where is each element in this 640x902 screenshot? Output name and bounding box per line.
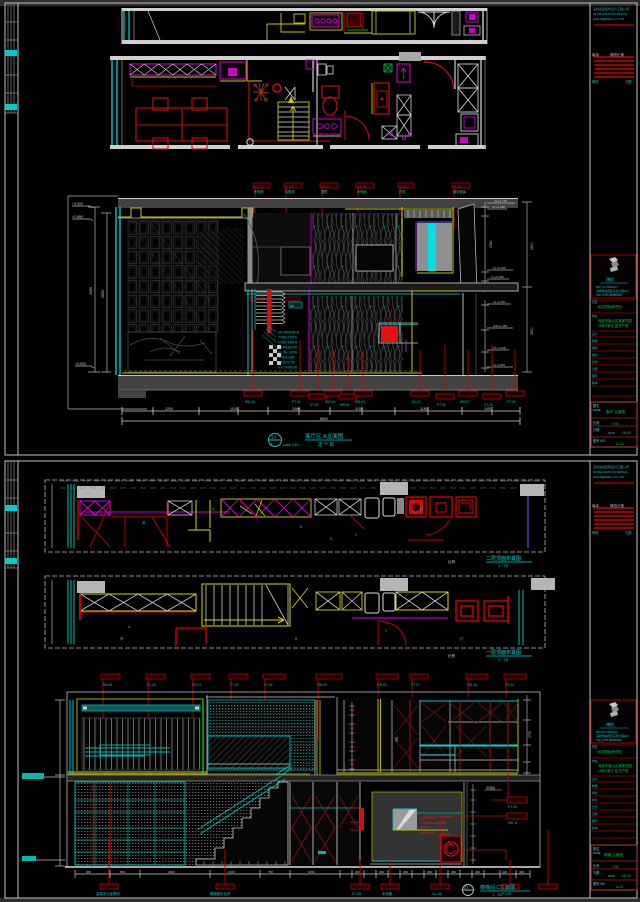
svg-text:修改记录: 修改记录	[610, 503, 624, 508]
svg-text:校对: 校对	[592, 798, 598, 802]
svg-text:12mm钢化玻璃栏板: 12mm钢化玻璃栏板	[278, 330, 300, 334]
svg-text:650: 650	[120, 870, 125, 874]
svg-text:260: 260	[475, 870, 480, 874]
svg-text:PT-02: PT-02	[285, 185, 293, 189]
svg-text:TEL:0755-88888888: TEL:0755-88888888	[596, 738, 622, 742]
svg-text:260: 260	[451, 870, 456, 874]
svg-text:2580: 2580	[489, 240, 493, 248]
svg-text:PT-05: PT-05	[437, 403, 446, 407]
svg-text:2850: 2850	[89, 287, 93, 295]
svg-text:PT-03: PT-03	[292, 400, 301, 404]
svg-text:1 : 75: 1 : 75	[498, 657, 509, 662]
svg-text:A: A	[270, 442, 273, 447]
svg-text:750: 750	[268, 870, 273, 874]
svg-text:6690: 6690	[320, 417, 328, 421]
svg-text:WD-04: WD-04	[325, 400, 335, 404]
svg-text:21: 21	[464, 885, 469, 890]
svg-text:WD-05: WD-05	[357, 185, 367, 189]
svg-text:NAME: NAME	[593, 851, 601, 855]
svg-text:WD-09: WD-09	[317, 683, 327, 687]
svg-text:图号: 图号	[592, 374, 598, 378]
svg-text:900: 900	[86, 870, 91, 874]
svg-text:13: 13	[271, 435, 277, 440]
svg-text:ST-05: ST-05	[352, 892, 361, 896]
svg-text:校对: 校对	[592, 353, 598, 357]
svg-text:MR-03: MR-03	[377, 683, 387, 687]
svg-text:私宅样板房项目: 私宅样板房项目	[598, 749, 622, 754]
svg-text:版本: 版本	[592, 381, 598, 385]
svg-text:比例: 比例	[593, 863, 599, 868]
svg-text:18栋2单元 复式户型: 18栋2单元 复式户型	[598, 768, 629, 773]
svg-text:楼梯 立面图: 楼梯 立面图	[604, 852, 623, 857]
svg-text:乳胶漆: 乳胶漆	[285, 189, 295, 194]
svg-text:WD-03: WD-03	[355, 400, 365, 404]
svg-text:深圳某某装饰设计工程公司: 深圳某某装饰设计工程公司	[593, 6, 629, 11]
svg-text:图号: 图号	[592, 819, 598, 823]
svg-text:审核: 审核	[592, 791, 598, 795]
svg-text:比例: 比例	[448, 559, 456, 564]
svg-text:+3.300: +3.300	[72, 202, 83, 206]
svg-text:1:50: 1:50	[612, 865, 619, 869]
svg-text:楼梯间 C立面图: 楼梯间 C立面图	[480, 884, 515, 891]
svg-text:制图: 制图	[592, 784, 598, 788]
svg-text:日期: 日期	[593, 870, 599, 875]
svg-text:PT-04: PT-04	[507, 400, 516, 404]
svg-text:ST-03: ST-03	[484, 403, 493, 407]
svg-text:MR-02: MR-02	[340, 403, 350, 407]
svg-text:SZ DECORATION DESIGN: SZ DECORATION DESIGN	[593, 470, 627, 474]
svg-text:GL-02: GL-02	[453, 185, 462, 189]
svg-text:PT-09: PT-09	[502, 892, 511, 896]
svg-text:WD-10: WD-10	[467, 683, 477, 687]
svg-text:A-21: A-21	[616, 885, 624, 889]
svg-text:图号 NO.: 图号 NO.	[593, 881, 606, 886]
svg-text:05-18: 05-18	[622, 874, 631, 878]
svg-text:420: 420	[502, 870, 507, 874]
svg-text:CL+2.750: CL+2.750	[494, 199, 507, 203]
svg-text:日期: 日期	[625, 530, 631, 535]
svg-text:260: 260	[355, 870, 360, 874]
svg-text:银镜: 银镜	[321, 189, 328, 194]
svg-text:制图: 制图	[592, 339, 598, 343]
svg-text:设计: 设计	[592, 332, 598, 336]
svg-text:05-18: 05-18	[622, 431, 631, 435]
svg-text:ENGINEERING CO.,LTD: ENGINEERING CO.,LTD	[593, 475, 624, 479]
svg-text:MR-01: MR-01	[321, 185, 330, 189]
svg-text:地址: 地址	[592, 759, 598, 763]
svg-text:日期: 日期	[592, 812, 598, 816]
svg-text:ST-01: ST-01	[399, 185, 407, 189]
svg-text:博优: 博优	[606, 276, 614, 282]
svg-text:WD-08: WD-08	[102, 683, 112, 687]
svg-text:1200: 1200	[228, 870, 235, 874]
svg-text:2800: 2800	[530, 242, 534, 250]
svg-text:WD+1.450: WD+1.450	[493, 324, 508, 328]
svg-text:CL+2.680: CL+2.680	[492, 205, 505, 209]
svg-text:1150: 1150	[355, 407, 363, 411]
svg-text:ENGINEERING CO.,LTD: ENGINEERING CO.,LTD	[593, 17, 624, 21]
svg-text:审核: 审核	[592, 79, 599, 84]
svg-text:客厅 立面图: 客厅 立面图	[606, 409, 625, 414]
svg-text:1 : 50: 1 : 50	[492, 892, 503, 897]
svg-text:图名: 图名	[593, 403, 599, 408]
svg-text:图名: 图名	[593, 846, 599, 851]
svg-text:18栋2单元 复式户型: 18栋2单元 复式户型	[598, 323, 629, 328]
svg-text:1000: 1000	[484, 407, 492, 411]
svg-text:SZ DECORATION DESIGN: SZ DECORATION DESIGN	[593, 12, 627, 16]
svg-text:日期: 日期	[625, 79, 631, 84]
svg-text:1060: 1060	[292, 407, 300, 411]
svg-text:木饰面: 木饰面	[382, 891, 393, 896]
svg-text:1180: 1180	[420, 407, 428, 411]
svg-text:PT-08: PT-08	[508, 805, 517, 809]
svg-text:GL-01: GL-01	[412, 400, 421, 404]
svg-text:GL-04: GL-04	[432, 892, 442, 896]
svg-text:地址: 地址	[592, 314, 598, 318]
svg-text:审核: 审核	[592, 346, 598, 350]
svg-text:+2.850: +2.850	[72, 215, 83, 219]
svg-text:木饰面: 木饰面	[357, 189, 367, 194]
svg-text:1 : 75: 1 : 75	[498, 563, 509, 568]
svg-text:比例: 比例	[593, 420, 599, 425]
svg-text:1200: 1200	[165, 407, 173, 411]
svg-text:版本: 版本	[592, 826, 598, 830]
svg-text:钢化玻璃: 钢化玻璃	[453, 189, 467, 194]
svg-text:审核: 审核	[592, 530, 599, 535]
svg-text:260: 260	[379, 870, 384, 874]
svg-text:理 石: 理 石	[438, 820, 446, 825]
svg-text:WD-11: WD-11	[508, 821, 518, 825]
svg-text:博优: 博优	[606, 721, 614, 727]
svg-text:比例: 比例	[448, 653, 456, 658]
svg-text:吊顶线: 吊顶线	[486, 785, 495, 790]
svg-text:项目: 项目	[592, 300, 598, 304]
svg-text:NAME: NAME	[593, 408, 601, 412]
svg-text:FL+0.050: FL+0.050	[491, 275, 504, 279]
svg-text:木饰面: 木饰面	[254, 189, 264, 194]
svg-text:2016: 2016	[608, 431, 615, 435]
svg-text:深圳某某装饰设计工程公司: 深圳某某装饰设计工程公司	[593, 464, 629, 469]
svg-text:比例: 比例	[592, 805, 598, 809]
svg-text:图号 NO.: 图号 NO.	[593, 438, 606, 443]
svg-text:260: 260	[403, 870, 408, 874]
svg-text:楼梯踏步石材: 楼梯踏步石材	[210, 891, 231, 896]
svg-text:定 个 如: 定 个 如	[318, 441, 335, 448]
svg-text:日期: 日期	[593, 427, 599, 432]
svg-text:比例: 比例	[592, 360, 598, 364]
svg-text:265: 265	[395, 736, 399, 742]
svg-text:深圳市南山区某某花园: 深圳市南山区某某花园	[598, 763, 633, 768]
svg-text:项目: 项目	[592, 745, 598, 749]
svg-text:修改记录: 修改记录	[610, 52, 624, 57]
svg-text:客厅区 A立面图: 客厅区 A立面图	[305, 432, 344, 440]
svg-text:金属冲孔板屏风: 金属冲孔板屏风	[96, 891, 120, 896]
svg-text:WD-07: WD-07	[460, 400, 470, 404]
svg-text:不锈钢扶手固定件: 不锈钢扶手固定件	[278, 335, 298, 339]
svg-text:一层顶面布置图: 一层顶面布置图	[486, 649, 521, 656]
svg-text:石材踏步饰面处理: 石材踏步饰面处理	[278, 340, 298, 344]
svg-text:MR-05: MR-05	[440, 832, 450, 836]
svg-text:a#: a#	[290, 304, 294, 308]
svg-text:1:50: 1:50	[612, 422, 619, 426]
svg-text:TEL:0755-88888888: TEL:0755-88888888	[596, 293, 622, 297]
svg-text:1250: 1250	[308, 870, 315, 874]
svg-text:FL-2.800: FL-2.800	[493, 363, 505, 367]
svg-text:二层顶面布置图: 二层顶面布置图	[486, 555, 521, 562]
svg-text:ST+0.600: ST+0.600	[493, 346, 506, 350]
svg-text:石材: 石材	[399, 189, 406, 194]
svg-text:+0.000: +0.000	[75, 362, 86, 366]
svg-text:2016: 2016	[608, 874, 615, 878]
svg-text:日期: 日期	[592, 367, 598, 371]
svg-text:260: 260	[427, 870, 432, 874]
svg-text:A-13: A-13	[616, 442, 624, 446]
svg-text:2550: 2550	[101, 290, 105, 298]
svg-text:吊: 吊	[142, 521, 145, 525]
svg-text:WD-01: WD-01	[254, 185, 264, 189]
svg-text:FL+0.100: FL+0.100	[493, 266, 506, 270]
svg-text:版本: 版本	[592, 503, 600, 508]
svg-text:2750: 2750	[528, 731, 532, 738]
svg-text:380: 380	[519, 870, 524, 874]
svg-text:CL-0.350: CL-0.350	[493, 300, 506, 304]
svg-text:scale 1:50: scale 1:50	[283, 443, 299, 447]
svg-text:ST-02: ST-02	[310, 403, 319, 407]
svg-text:2800: 2800	[530, 327, 534, 335]
svg-text:版本: 版本	[592, 52, 600, 57]
svg-text:1800: 1800	[168, 870, 175, 874]
svg-text:设计: 设计	[592, 777, 598, 781]
svg-text:深圳市南山区某某花园: 深圳市南山区某某花园	[598, 318, 633, 323]
svg-text:1100: 1100	[230, 407, 238, 411]
svg-text:详见大样图纸说明: 详见大样图纸说明	[278, 365, 298, 369]
svg-text:私宅样板房项目: 私宅样板房项目	[598, 304, 622, 309]
svg-text:吊: 吊	[120, 637, 123, 641]
svg-text:WD-06: WD-06	[245, 400, 255, 404]
